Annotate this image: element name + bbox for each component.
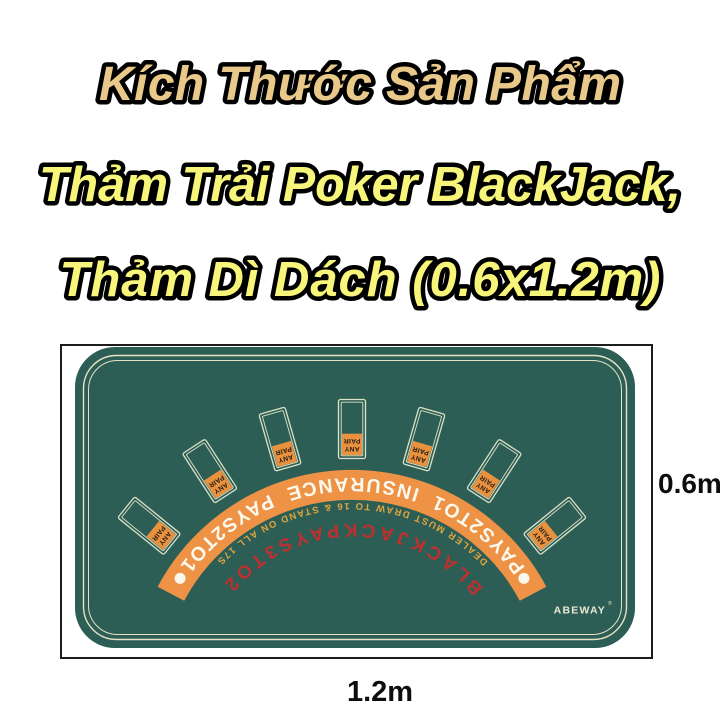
band-end-dot-left [518, 573, 529, 584]
brand-logo: ABEWAY [554, 605, 606, 617]
poker-mat-illustration: PAYS2TO1 INSURANCE PAYS2TO1 DEALER MUST … [75, 347, 635, 648]
any-pair-badge-line2: PAIR [344, 437, 361, 444]
headline-block: Kích Thước Sản Phẩm Thảm Trải Poker Blac… [0, 0, 720, 330]
title-line-2: Thảm Trải Poker BlackJack, [39, 158, 681, 212]
any-pair-badge-line1: ANY [344, 445, 359, 452]
product-size-infographic: Kích Thước Sản Phẩm Thảm Trải Poker Blac… [0, 0, 720, 720]
band-end-dot-right [175, 573, 186, 584]
brand-registered-mark: ® [608, 600, 612, 607]
height-dimension-label: 0.6m [658, 468, 720, 500]
title-line-1: Kích Thước Sản Phẩm [99, 58, 621, 111]
title-line-3: Thảm Dì Dách (0.6x1.2m) [60, 253, 661, 307]
width-dimension-label: 1.2m [320, 676, 440, 709]
